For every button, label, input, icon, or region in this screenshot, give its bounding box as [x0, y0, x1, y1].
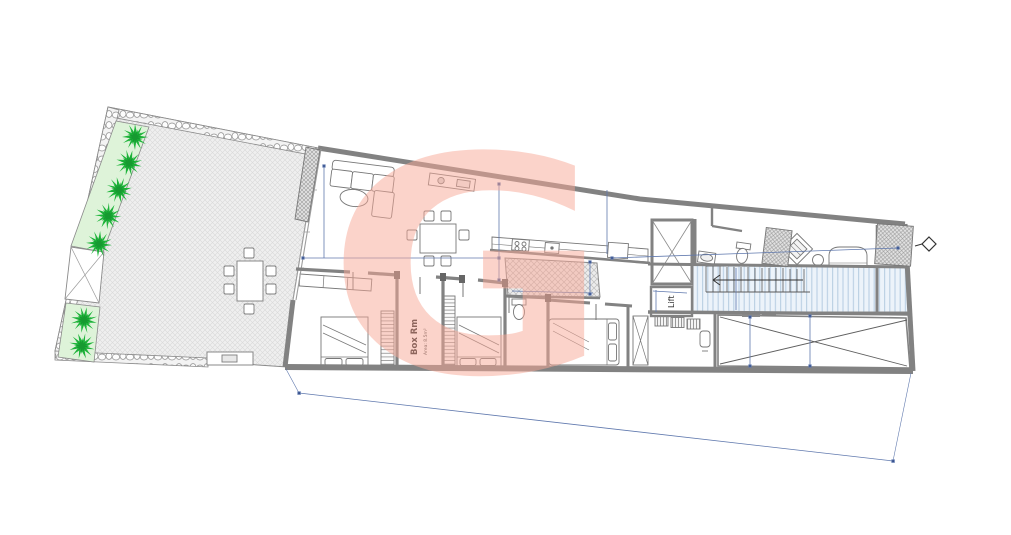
- entrance-lobby-hatch: [875, 224, 914, 266]
- void-room: [718, 313, 910, 368]
- outdoor-table: [237, 261, 263, 301]
- floor-plan-page: Lift: [0, 0, 1011, 535]
- vent-grille: [687, 319, 700, 329]
- watermark: G: [326, 95, 609, 444]
- door-diamond-icon: [915, 237, 936, 251]
- vent-grille: [671, 318, 684, 328]
- kitchen-appliance: [607, 242, 628, 258]
- floor-plan-drawing: Lift: [0, 0, 1011, 535]
- party-wall-mid: [762, 228, 792, 267]
- wall-stairband-bottom: [648, 312, 908, 314]
- washbasin-icon: [697, 251, 715, 264]
- terrace-bbq-counter: [207, 352, 253, 365]
- side-table: [813, 255, 824, 266]
- vent-grille: [655, 316, 668, 326]
- staircase: [693, 264, 908, 317]
- terrace: [55, 107, 318, 367]
- watermark-letter: G: [326, 95, 609, 444]
- lift-label: Lift: [667, 296, 676, 309]
- lift-block: Lift: [651, 220, 692, 316]
